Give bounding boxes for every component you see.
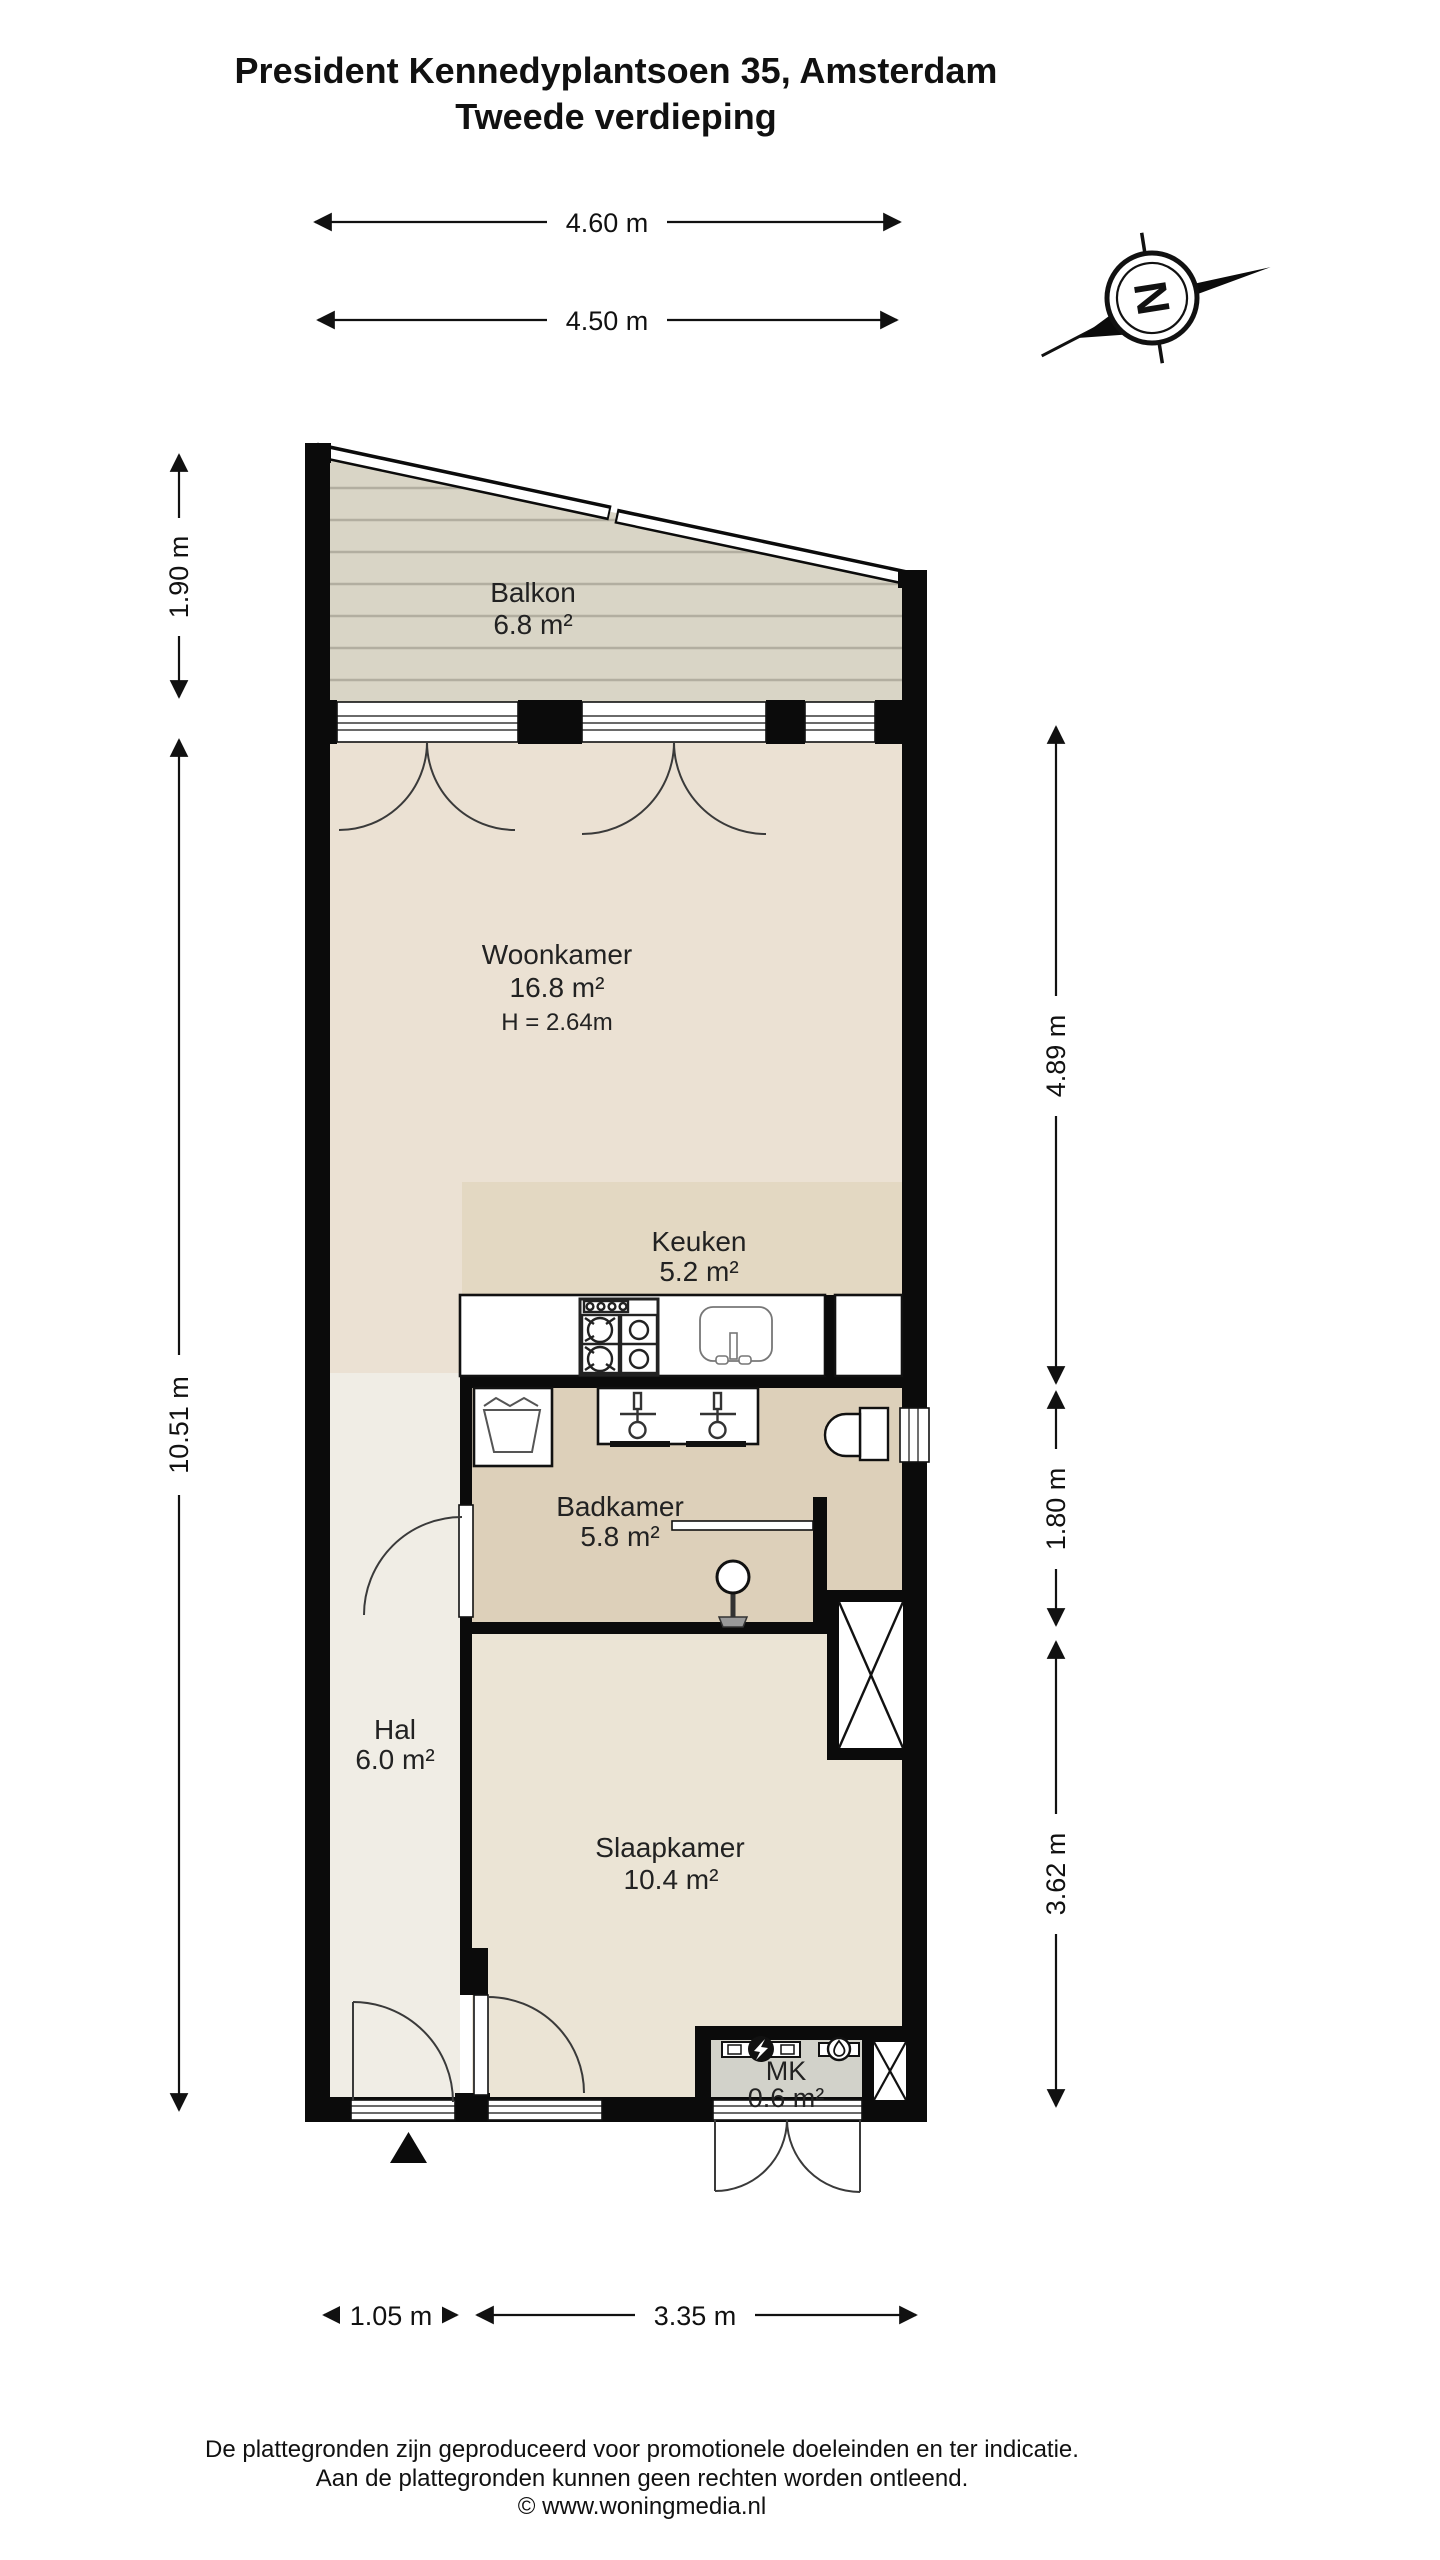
bedroom-window [488, 2100, 602, 2120]
label-mk-area: 0.6 m² [748, 2083, 825, 2113]
label-mk: MK [766, 2056, 807, 2086]
label-keuken: Keuken [652, 1226, 747, 1257]
mk-double-door [713, 2100, 862, 2192]
dimension-top-inner: 4.50 m [318, 301, 897, 339]
label-balkon: Balkon [490, 577, 576, 608]
kitchen-counter-divider [825, 1295, 835, 1376]
dimension-right-upper: 4.89 m [1037, 727, 1075, 1383]
label-balkon-area: 6.8 m² [493, 609, 572, 640]
entrance-marker [390, 2132, 427, 2163]
kitchen-counter [460, 1295, 902, 1376]
svg-text:10.51 m: 10.51 m [164, 1376, 194, 1474]
compass-north-icon: N [1025, 214, 1283, 382]
wall-kitchen-bathroom [460, 1376, 902, 1388]
wall-badkamer-bottom [472, 1622, 827, 1634]
shaft-corner [862, 2026, 927, 2122]
svg-text:3.35 m: 3.35 m [654, 2301, 737, 2331]
sink-icon [700, 1307, 772, 1364]
label-hal: Hal [374, 1714, 416, 1745]
double-washbasin-icon [598, 1388, 758, 1444]
footer-line-1: De plattegronden zijn geproduceerd voor … [0, 2436, 1284, 2465]
wall-hal-bottom-pier [455, 2093, 490, 2122]
svg-text:4.60 m: 4.60 m [566, 208, 649, 238]
label-woonkamer-area: 16.8 m² [510, 972, 605, 1003]
label-keuken-area: 5.2 m² [659, 1256, 738, 1287]
dimension-left-balcony: 1.90 m [160, 455, 198, 697]
wall-hal-vertical [460, 1376, 472, 1948]
svg-text:4.50 m: 4.50 m [566, 306, 649, 336]
svg-text:1.80 m: 1.80 m [1041, 1468, 1071, 1551]
dimension-right-lower: 3.62 m [1037, 1642, 1075, 2106]
label-slaapkamer-area: 10.4 m² [624, 1864, 719, 1895]
floorplan-page: President Kennedyplantsoen 35, Amsterdam… [0, 0, 1440, 2560]
dimension-left-main: 10.51 m [160, 740, 198, 2110]
label-woonkamer: Woonkamer [482, 939, 632, 970]
footer-disclaimer: De plattegronden zijn geproduceerd voor … [0, 2436, 1284, 2522]
wall-mk-left [695, 2026, 711, 2097]
label-woonkamer-height: H = 2.64m [501, 1009, 612, 1036]
label-hal-area: 6.0 m² [355, 1744, 434, 1775]
wall-pier-balcony-right [766, 700, 805, 744]
svg-text:3.62 m: 3.62 m [1041, 1833, 1071, 1916]
dimension-bottom-right: 3.35 m [477, 2296, 916, 2334]
wall-pier-balcony-mid [518, 700, 582, 744]
label-slaapkamer: Slaapkamer [595, 1832, 744, 1863]
shaft-main [827, 1590, 915, 1760]
wall-badkamer-stub [813, 1497, 827, 1634]
wall-pier-balcony-corner [875, 700, 927, 744]
floorplan-drawing: Balkon 6.8 m² Woonkamer 16.8 m² H = 2.64… [0, 0, 1440, 2560]
wall-pier-balcony-left [305, 700, 337, 744]
footer-line-3: © www.woningmedia.nl [0, 2493, 1284, 2522]
wall-right [902, 570, 927, 2122]
dimension-top-outer: 4.60 m [315, 203, 900, 241]
kitchen-counter-right [835, 1295, 902, 1376]
bathroom-window [900, 1408, 929, 1462]
room-balkon-floor [330, 452, 902, 702]
living-room-window [805, 702, 875, 742]
label-badkamer-area: 5.8 m² [580, 1521, 659, 1552]
dimension-right-middle: 1.80 m [1037, 1392, 1075, 1625]
washing-machine-icon [474, 1388, 552, 1466]
label-badkamer: Badkamer [556, 1491, 684, 1522]
stove-icon [580, 1299, 658, 1375]
svg-text:1.05 m: 1.05 m [350, 2301, 433, 2331]
wall-left [305, 446, 330, 2122]
svg-text:4.89 m: 4.89 m [1041, 1015, 1071, 1098]
svg-text:1.90 m: 1.90 m [164, 536, 194, 619]
footer-line-2: Aan de plattegronden kunnen geen rechten… [0, 2465, 1284, 2494]
wall-hal-jog [460, 1948, 488, 1995]
dimension-bottom-left: 1.05 m [324, 2296, 457, 2334]
